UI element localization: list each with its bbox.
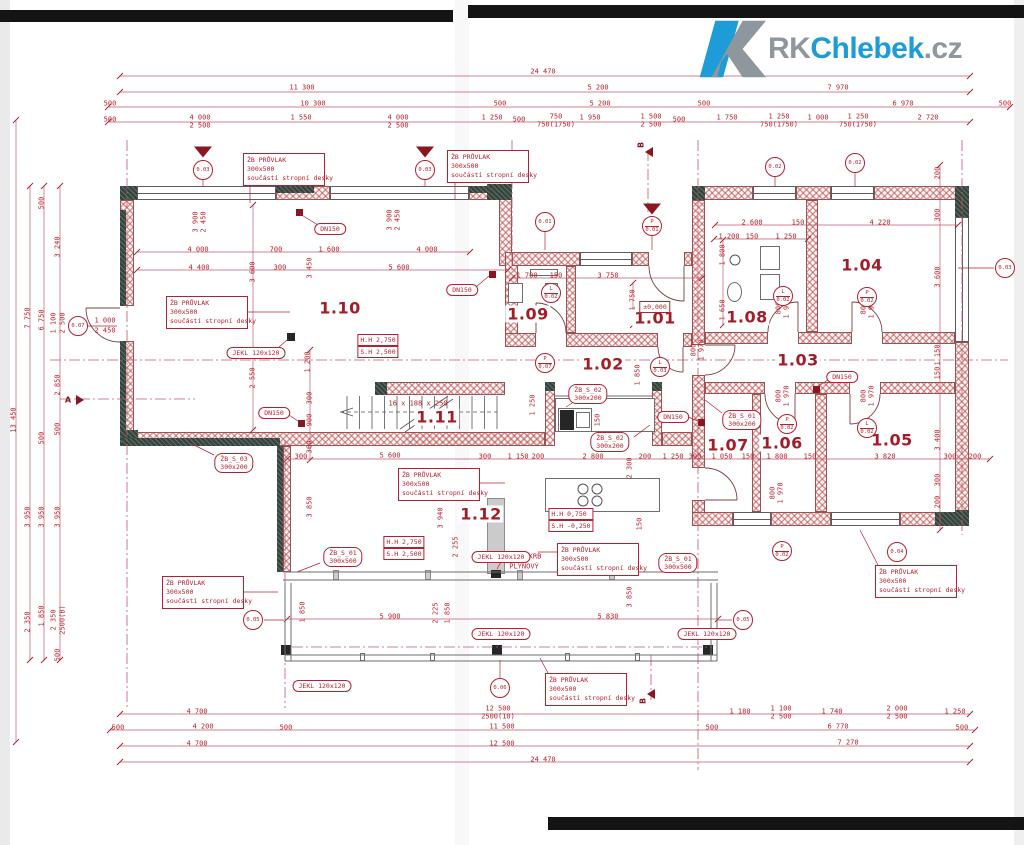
dimension-text: 3 950: [55, 506, 62, 527]
pill-label-line: JEKL 120x120: [684, 630, 731, 638]
dimension-text: 12 500: [485, 706, 510, 713]
dn150-pill: DN150: [258, 407, 290, 419]
wall-segment: [795, 382, 850, 394]
dimension-text: 200: [969, 454, 982, 461]
beam-label-line: 300x500: [879, 577, 953, 586]
leader-line: [297, 563, 320, 572]
dimension-text: 1 800: [720, 244, 727, 265]
wall-segment: [512, 252, 580, 266]
scan-bar: [548, 817, 1024, 830]
dimension-text: 1 200: [305, 351, 312, 372]
drain-marker: [813, 386, 820, 393]
column-fill: [333, 570, 339, 580]
height-note-line: H.H 0,750: [548, 508, 593, 520]
dimension-text: 2 450: [201, 211, 208, 232]
fixture-outline: [508, 283, 523, 303]
ref-circle-text: 0.05: [246, 617, 259, 624]
dimension-text: 150: [935, 367, 942, 380]
dimension-text: 150: [637, 518, 644, 531]
dimension-text: 750(1750): [839, 122, 877, 129]
dim-tick: [117, 759, 123, 765]
dimension-text: 3 850: [307, 496, 314, 517]
dim-tick: [937, 527, 943, 533]
leader-line: [540, 658, 548, 673]
ref-circle-text: P: [645, 219, 659, 227]
ref-circle-text: 0.04: [890, 549, 903, 556]
entrance-marker: [416, 147, 434, 158]
pill-label-line: ŽB_S_02: [596, 434, 623, 442]
wall-segment: [566, 266, 576, 333]
dimension-text: 7 970: [827, 85, 848, 92]
ref-circle: L0.02: [857, 418, 877, 438]
dimension-text: 1 700: [516, 273, 537, 280]
column-fill: [517, 570, 523, 580]
pill-label-line: 300x200: [220, 463, 247, 471]
wall-segment: [283, 446, 291, 572]
slab-pill: ŽB_S_01300x200: [722, 410, 761, 430]
dimension-text: 800: [776, 390, 783, 403]
ref-circle: P0.01: [642, 216, 662, 236]
door-swing: [705, 345, 735, 375]
beam-label-line: součástí stropní desky: [247, 174, 321, 183]
ref-circle-text: 0.02: [768, 164, 781, 171]
room-label: 1.04: [839, 257, 884, 274]
dimension-text: 500: [698, 101, 711, 108]
dim-tick: [117, 73, 123, 79]
wall-dark-segment: [120, 186, 138, 200]
dimension-text: 4 000: [189, 115, 210, 122]
window: [831, 512, 900, 526]
room-label: 1.09: [505, 306, 550, 323]
dimension-text: 1 800: [766, 454, 787, 461]
wall-segment: [692, 200, 705, 345]
post-marker: [703, 645, 713, 655]
dimension-text: 1 250: [847, 114, 868, 121]
ref-circle-text: P: [775, 544, 789, 552]
beam-label-line: součástí stropní desky: [166, 597, 240, 606]
pill-label-line: 300x200: [728, 420, 755, 428]
dimension-text: 3 900: [193, 211, 200, 232]
wall-segment: [375, 382, 505, 395]
dim-tick: [284, 616, 290, 622]
dimension-text: 1 970: [699, 339, 706, 360]
slab-pill: ŽB_S_01300x500: [323, 547, 362, 567]
dimension-text: 2 500: [189, 123, 210, 130]
dimension-text: 1 000: [807, 115, 828, 122]
dimension-text: 1 150: [935, 344, 942, 365]
beam-label-line: součástí stropní desky: [879, 586, 953, 595]
ref-circle-text: 0.03: [196, 167, 209, 174]
wall-segment: [662, 432, 692, 446]
rkchlebek-logo: RKChlebek.cz: [688, 20, 1018, 82]
dimension-text: 1 750: [630, 289, 637, 310]
wall-segment: [882, 332, 955, 344]
pill-label-line: ŽB_S_03: [220, 455, 247, 463]
ref-circle: 0.06: [490, 678, 510, 698]
dimension-text: 150: [804, 454, 817, 461]
beam-label-line: 300x500: [561, 555, 635, 564]
pill-label-line: ŽB_S_02: [574, 386, 601, 394]
leader-line: [476, 276, 489, 287]
section-letter: B: [639, 698, 648, 704]
scan-edge-strip: [1014, 0, 1024, 845]
dimension-text: 5 200: [589, 101, 610, 108]
window: [753, 186, 796, 200]
dimension-text: 24 470: [530, 69, 555, 76]
ref-circle: L0.03: [650, 357, 670, 377]
beam-label-box: ŽB PRŮVLAK300x500součástí stropní desky: [166, 296, 248, 329]
wall-segment: [632, 252, 649, 266]
pill-label-line: JEKL 120x120: [478, 553, 525, 561]
dimension-text: 500: [55, 649, 62, 662]
ref-circle: L0.02: [773, 286, 793, 306]
ref-circle-text: L: [776, 289, 790, 297]
ref-circle-text: 0.07: [538, 364, 551, 371]
dimension-text: 200: [935, 167, 942, 180]
wall-dark-segment: [277, 446, 283, 572]
scan-edge-strip: [0, 0, 10, 845]
dimension-text: 2 450: [94, 328, 115, 335]
beam-label-line: ŽB PRŮVLAK: [549, 676, 623, 685]
dn150-pill: DN150: [446, 284, 478, 296]
dim-tick: [967, 759, 973, 765]
ref-circle-text: 0.05: [736, 617, 749, 624]
dimension-text: KRB: [529, 554, 542, 561]
dimension-text: 4 220: [869, 220, 890, 227]
pill-label-line: DN150: [320, 225, 340, 233]
beam-label-box: ŽB PRŮVLAK300x500součástí stropní desky: [557, 543, 639, 576]
dimension-text: 3 900: [387, 209, 394, 230]
dimension-text: 500: [104, 117, 117, 124]
dimension-text: 300: [689, 454, 702, 461]
dim-tick: [13, 117, 19, 123]
wall-dark-segment: [120, 341, 126, 430]
ref-circle: 0.02: [765, 157, 785, 177]
room-label: 1.12: [458, 506, 503, 523]
dim-tick: [57, 183, 63, 189]
dimension-text: 1 750: [716, 115, 737, 122]
dimension-text: 200: [532, 454, 545, 461]
wall-segment: [692, 512, 733, 526]
beam-label-line: ŽB PRŮVLAK: [451, 153, 525, 162]
wall-segment: [545, 382, 555, 446]
dimension-text: 2 255: [453, 536, 460, 557]
dimension-text: 300: [944, 454, 957, 461]
dimension-text: 500: [494, 101, 507, 108]
pill-label-line: 300x500: [664, 563, 691, 571]
dimension-text: 1 250: [530, 394, 537, 415]
dimension-text: 5 900: [379, 614, 400, 621]
wall-dark-segment: [469, 186, 491, 193]
drain-marker: [489, 271, 496, 278]
dimension-text: 13 450: [11, 407, 18, 432]
door-swing: [705, 468, 737, 500]
dimension-text: 4 400: [188, 265, 209, 272]
room-label: 1.08: [724, 309, 769, 326]
dimension-text: 1 970: [778, 482, 785, 503]
dimension-text: 11 500: [489, 724, 514, 731]
wall-segment: [684, 252, 692, 266]
pill-label-line: ŽB_S_01: [329, 549, 356, 557]
wall-segment: [705, 332, 768, 344]
door-swing: [86, 308, 120, 342]
fixture-outline: [760, 246, 780, 270]
ref-circle-text: P: [860, 290, 874, 298]
dimension-text: 1 250: [481, 115, 502, 122]
window: [733, 512, 771, 526]
height-note: H.H 2,750S.H 2,500: [383, 536, 424, 560]
dimension-text: 300: [935, 209, 942, 222]
ref-circle-text: 0.06: [493, 685, 506, 692]
dimension-text: 1 850: [300, 601, 307, 622]
toilet-icon: [727, 282, 742, 302]
dimension-text: 1 250: [662, 454, 683, 461]
wall-segment: [806, 200, 818, 332]
post-marker: [287, 333, 295, 341]
dimension-text: 1 250: [944, 709, 965, 716]
dimension-text: 3 600: [935, 266, 942, 287]
dimension-text: 2 800: [582, 454, 603, 461]
dimension-text: 7 270: [837, 740, 858, 747]
dim-tick: [41, 183, 47, 189]
dimension-text: 500: [39, 197, 46, 210]
dim-tick: [967, 743, 973, 749]
dimension-text: 3 850: [627, 586, 634, 607]
wall-segment: [880, 382, 955, 394]
dimension-text: 12 500: [489, 741, 514, 748]
dimension-text: 500: [673, 117, 686, 124]
wall-dark-segment: [652, 382, 662, 391]
beam-label-line: součástí stropní desky: [402, 489, 476, 498]
dim-tick: [967, 89, 973, 95]
dimension-text: 1 970: [784, 385, 791, 406]
dimension-text: 1 000: [94, 318, 115, 325]
dimension-text: 10 300: [300, 101, 325, 108]
dim-tick: [987, 456, 993, 462]
fixture-outline: [576, 412, 590, 428]
dimension-text: 150: [595, 414, 602, 427]
dimension-text: 150: [742, 454, 755, 461]
logo-text-rk: RK: [768, 32, 810, 65]
column-fill: [425, 570, 431, 580]
beam-label-line: ŽB PRŮVLAK: [402, 471, 476, 480]
logo-text-chlebek: Chlebek: [810, 32, 923, 65]
dim-tick: [134, 267, 140, 273]
dimension-text: 360: [307, 441, 314, 454]
dimension-text: 5 600: [379, 453, 400, 460]
dim-tick: [27, 657, 33, 663]
ref-circle: 0.03: [193, 160, 213, 180]
drain-marker: [296, 209, 303, 216]
ref-circle: 0.04: [887, 542, 907, 562]
dim-tick: [27, 183, 33, 189]
dimension-text: 16 x 188 x 250: [388, 401, 447, 408]
beam-label-line: součástí stropní desky: [549, 694, 623, 703]
dimension-text: 1 180: [729, 709, 750, 716]
ref-circle-text: L: [653, 360, 667, 368]
entrance-marker: [194, 147, 212, 158]
ref-circle-text: L: [860, 421, 874, 429]
dimension-text: 3 950: [39, 506, 46, 527]
dimension-text: 2 225: [433, 602, 440, 623]
section-letter: B: [637, 142, 646, 148]
dimension-text: 3 400: [935, 429, 942, 450]
ref-circle-text: 0.02: [776, 297, 789, 304]
jekl-pill: JEKL 120x120: [472, 628, 531, 640]
dimension-text: 2 500: [770, 714, 791, 721]
jekl-pill: JEKL 120x120: [227, 347, 286, 359]
dimension-text: 1 150: [507, 454, 528, 461]
height-note-line: S.H -0,250: [548, 520, 593, 532]
height-note: H.H 0,750S.H -0,250: [548, 508, 593, 532]
dimension-text: 1 200: [718, 234, 739, 241]
dimension-text: 500: [956, 725, 969, 732]
wall-dark-segment: [692, 186, 705, 200]
dimension-text: 3 600: [250, 261, 257, 282]
dimension-text: 7 750: [25, 307, 32, 328]
dimension-text: 750(1750): [537, 122, 575, 129]
room-label: 1.05: [869, 432, 914, 449]
dimension-text: 3 750: [597, 273, 618, 280]
post-marker: [560, 410, 574, 430]
pill-label-line: 300x500: [329, 557, 356, 565]
beam-label-line: 300x500: [166, 588, 240, 597]
ref-circle: P0.02: [857, 287, 877, 307]
dimension-text: 1 970: [869, 385, 876, 406]
pill-label-line: DN150: [452, 286, 472, 294]
post-marker: [492, 645, 502, 655]
slab-pill: ŽB_S_03300x200: [214, 453, 253, 473]
beam-label-line: ŽB PRŮVLAK: [879, 568, 953, 577]
ref-circle: L0.02: [541, 283, 561, 303]
window: [137, 186, 276, 200]
section-marker: [645, 147, 653, 157]
dimension-text: 6 970: [892, 101, 913, 108]
dimension-text: 300: [307, 392, 314, 405]
wall-segment: [505, 333, 536, 347]
room-label: 1.03: [775, 352, 820, 369]
dimension-text: 150: [746, 234, 759, 241]
dimension-text: 500: [999, 101, 1012, 108]
leader-line: [289, 415, 298, 421]
dimension-text: 500: [513, 117, 526, 124]
drain-marker: [298, 420, 305, 427]
dim-tick: [967, 119, 973, 125]
fixture-outline: [545, 478, 660, 512]
dimension-text: 6 770: [827, 724, 848, 731]
ref-circle-text: 0.02: [848, 160, 861, 167]
wall-segment: [798, 332, 852, 344]
dimension-text: 4 000: [416, 247, 437, 254]
dim-tick: [41, 657, 47, 663]
wall-dark-segment: [375, 382, 387, 395]
wall-segment: [771, 512, 831, 526]
ref-circle: 0.01: [535, 212, 555, 232]
fixture-circle: [730, 255, 740, 265]
dimension-text: 500: [104, 101, 117, 108]
ref-circle: 0.05: [733, 610, 753, 630]
slab-pill: ŽB_S_02300x200: [568, 384, 607, 404]
fixture-outline: [565, 653, 570, 661]
dim-tick: [711, 236, 717, 242]
dimension-text: 2500(B): [60, 605, 67, 635]
dn150-pill: DN150: [314, 223, 346, 235]
dim-tick: [117, 743, 123, 749]
height-note: H.H 2,750S.H 2,500: [357, 334, 398, 358]
wall-dark-segment: [120, 210, 126, 306]
section-marker: [76, 395, 84, 405]
dimension-text: 4 000: [387, 115, 408, 122]
wall-dark-segment: [545, 382, 555, 391]
dimension-text: 200: [639, 454, 652, 461]
dimension-text: 2 500: [640, 122, 661, 129]
dimension-text: 1 850: [39, 605, 46, 626]
ref-circle-text: 0.01: [645, 227, 658, 234]
window: [955, 217, 969, 342]
drain-marker: [698, 419, 705, 426]
dimension-text: 1 850: [445, 602, 452, 623]
dimension-text: 3 450: [307, 257, 314, 278]
ref-circle-text: 0.02: [860, 429, 873, 436]
ref-circle-text: 0.07: [71, 323, 84, 330]
pill-label-line: ŽB_S_01: [728, 412, 755, 420]
dimension-text: 1 250: [768, 114, 789, 121]
ref-circle-text: 0.02: [780, 425, 793, 432]
dimension-text: 1 550: [290, 115, 311, 122]
dimension-text: 2 500: [886, 714, 907, 721]
dimension-text: 300: [479, 454, 492, 461]
ref-circle-text: 0.02: [860, 298, 873, 305]
dim-tick: [630, 280, 636, 286]
pill-label-line: JEKL 120x120: [233, 349, 280, 357]
pill-label-line: JEKL 120x120: [299, 682, 346, 690]
beam-label-line: součástí stropní desky: [451, 171, 525, 180]
dimension-text: 2 600: [741, 220, 762, 227]
dimension-text: 1 100: [770, 706, 791, 713]
dimension-text: 2 720: [917, 115, 938, 122]
dimension-text: 300: [935, 474, 942, 487]
dimension-text: 800: [861, 390, 868, 403]
dimension-text: 900: [307, 414, 314, 427]
wall-segment: [566, 333, 658, 347]
dimension-text: 1 250: [775, 234, 796, 241]
ref-circle: 0.05: [243, 610, 263, 630]
dimension-text: 750: [550, 114, 563, 121]
dimension-text: 1 100: [51, 312, 58, 333]
post-marker: [491, 570, 501, 578]
ref-circle: P0.02: [777, 414, 797, 434]
beam-label-box: ŽB PRŮVLAK300x500součástí stropní desky: [447, 150, 529, 183]
dn150-pill: DN150: [657, 411, 689, 423]
dimension-text: 5 600: [388, 265, 409, 272]
pill-label-line: 300x200: [574, 394, 601, 402]
dimension-text: PLYNOVÝ: [509, 564, 539, 571]
dimension-text: 11 300: [289, 85, 314, 92]
dimension-text: 3 820: [874, 454, 895, 461]
dim-tick: [117, 711, 123, 717]
floorplan-drawing: 24 47011 3005 2007 97050010 3005005 2005…: [0, 0, 1024, 845]
dim-tick: [117, 89, 123, 95]
dimension-text: 24 470: [530, 757, 555, 764]
room-label: 1.06: [759, 435, 804, 452]
dim-tick: [13, 739, 19, 745]
dim-tick: [972, 727, 978, 733]
dimension-text: 3 950: [25, 506, 32, 527]
height-note-line: S.H 2,500: [357, 346, 398, 358]
dimension-text: 150: [792, 220, 805, 227]
dimension-text: 1 050: [711, 454, 732, 461]
scan-bar: [468, 5, 1024, 18]
